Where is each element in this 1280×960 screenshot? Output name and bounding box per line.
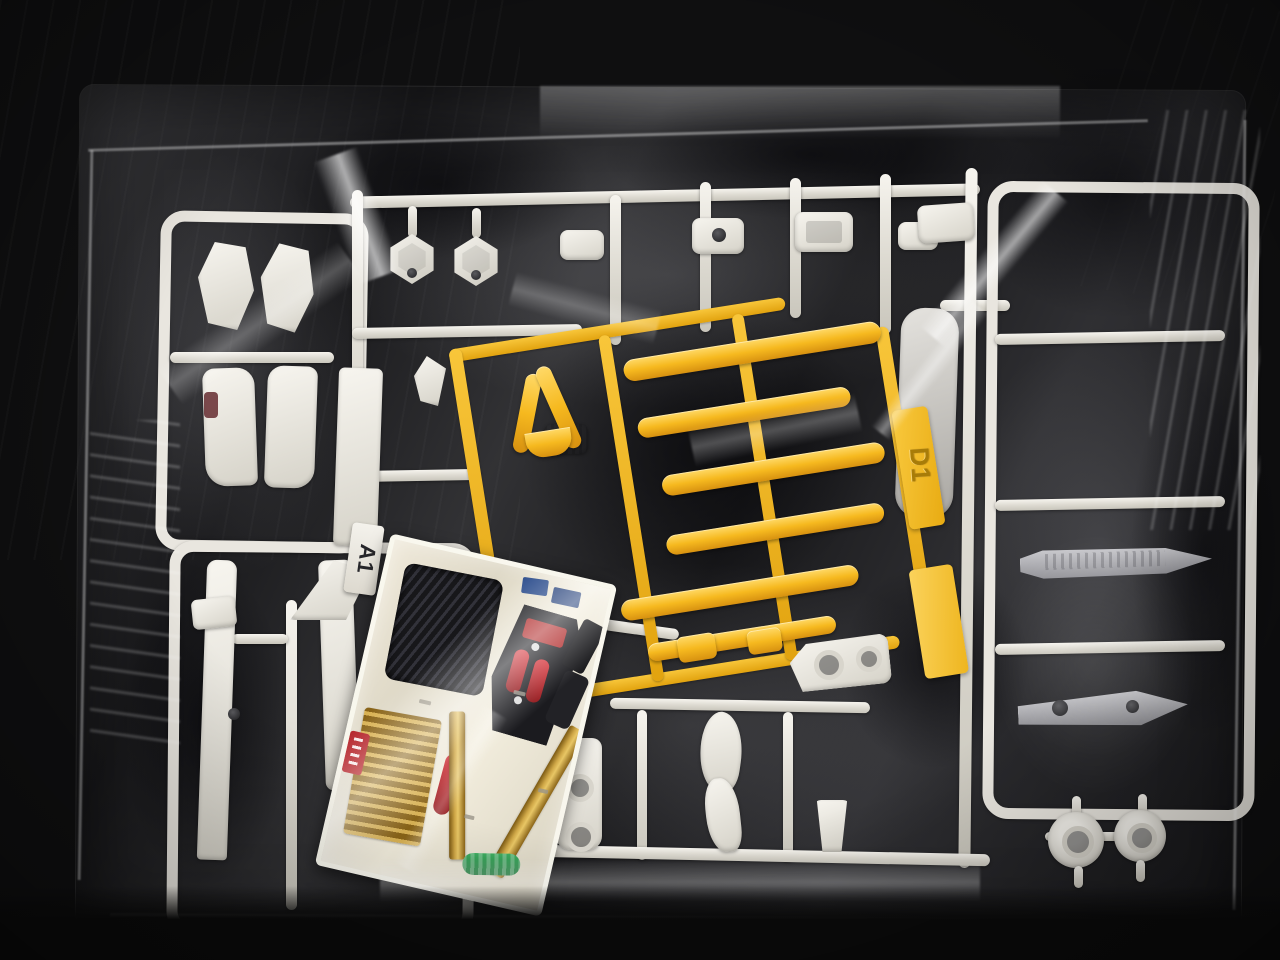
rect-frame-part-inner <box>806 221 842 243</box>
bracket-ring <box>566 822 596 852</box>
small-joint-part <box>917 202 976 244</box>
clamp-bracket-ring <box>856 646 882 672</box>
clear-wing-hole <box>1052 700 1068 716</box>
rifle-hole <box>228 708 240 720</box>
table-bottom-strip <box>0 886 1280 960</box>
leg-part-right <box>264 365 318 489</box>
clear-wing-hole <box>1126 700 1139 713</box>
sprue-stem <box>1074 866 1083 888</box>
small-rect-part <box>560 230 604 260</box>
runner-tag-a1-label: A1 <box>351 543 381 576</box>
sprue-stem <box>408 206 417 238</box>
rect-part-hole <box>712 228 726 242</box>
white-runner-rail <box>170 352 334 363</box>
thruster-bell-1-ring <box>1062 826 1094 858</box>
thruster-bell-2-ring <box>1127 823 1157 853</box>
yellow-clamp-part-1 <box>676 632 718 664</box>
runner-tag-d1-label: D1 <box>903 446 936 483</box>
white-runner-rail <box>286 600 297 910</box>
white-runner-rail <box>783 712 793 862</box>
photo-stage: D1 A1 <box>0 0 1280 960</box>
runner-tag-d1: D1 <box>891 406 945 530</box>
white-runner-rail <box>637 710 647 860</box>
white-runner-rail <box>232 634 288 644</box>
hex-part-hole <box>471 270 481 280</box>
yellow-clamp-part-2 <box>746 626 783 655</box>
leg-part-left <box>202 367 258 487</box>
yellow-rail-mid-1 <box>598 334 665 682</box>
yellow-beam-bar-3 <box>661 441 887 497</box>
white-plate-part <box>333 367 383 546</box>
yellow-flat-panel <box>908 564 969 680</box>
rifle-scope <box>191 596 238 630</box>
yellow-wing-part-foot <box>524 427 574 460</box>
hex-part-hole <box>407 268 417 278</box>
clamp-bracket-ring <box>814 650 844 680</box>
sprue-stem <box>1136 860 1145 882</box>
yellow-beam-bar-5 <box>620 564 860 622</box>
red-part-glimpse <box>204 392 218 418</box>
yellow-rail-mid-2 <box>731 313 798 661</box>
sprue-stem <box>472 208 481 238</box>
